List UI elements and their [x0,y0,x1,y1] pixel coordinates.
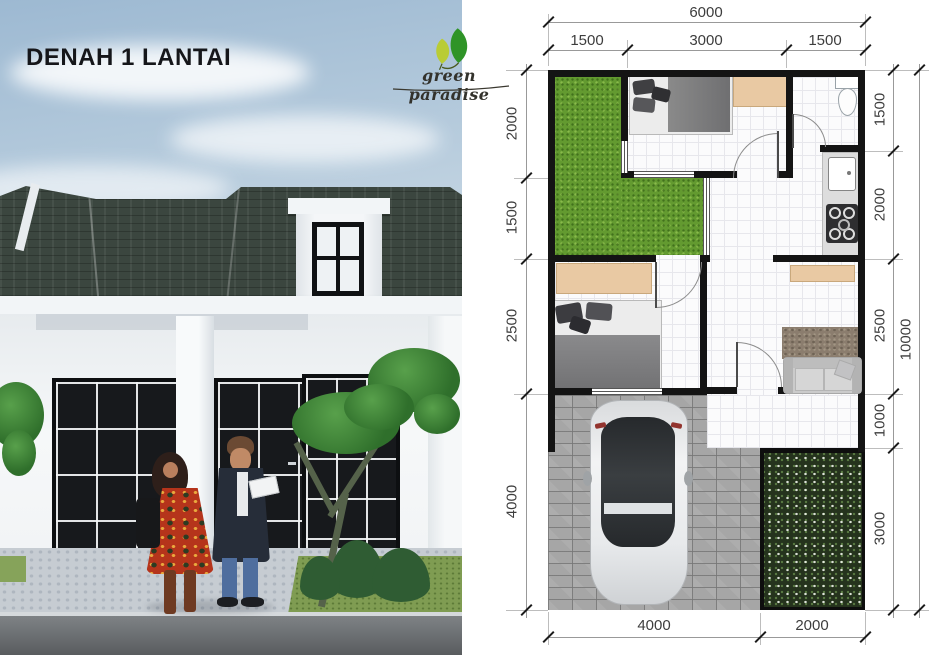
dim-left-seg-2: 1500 [504,188,521,248]
wall-kitchen-bottom [773,255,865,262]
man-shoe [217,597,238,607]
dim-line [893,64,894,618]
pillow [632,97,655,113]
extension-line [514,394,548,395]
road [0,616,462,655]
wall-bedroom2-top [548,255,656,262]
dim-right-seg-4: 1000 [872,391,889,451]
sofa-cushion [795,368,824,391]
stove-knob [838,219,850,231]
pillow [585,302,612,321]
bed-blanket [552,335,660,391]
dim-left-seg-4: 4000 [504,472,521,532]
porch-shadow [36,314,308,330]
dim-top-seg-2: 3000 [676,32,736,49]
door-leaf [736,342,738,387]
window-icon [592,388,662,395]
dim-bottom-seg-2: 2000 [782,617,842,634]
wardrobe-icon [556,263,652,294]
man-shoe [241,597,264,607]
wall-stub [778,171,793,178]
car-roof-band [604,503,672,514]
dim-left-seg-3: 2500 [504,296,521,356]
woman-face [163,462,178,478]
man-jeans [222,558,237,600]
sofa-arm [784,358,793,393]
dim-line [919,64,920,618]
woman-boot [184,570,196,612]
wall-terrace-left [707,387,737,394]
extension-line [786,40,787,68]
dormer-cornice [288,198,390,214]
poster: DENAH 1 LANTAI [0,0,938,655]
sofa-arm [852,358,861,393]
window-icon [703,178,710,255]
bed-blanket [668,77,730,132]
woman-boot [164,570,176,614]
roof [0,182,462,304]
logo-underline [391,84,511,92]
extension-line [865,151,903,152]
wardrobe-icon [733,76,788,107]
dim-right-seg-5: 3000 [872,499,889,559]
dim-right-total: 10000 [898,310,915,370]
frangipani-foliage [414,394,460,434]
car-mirror [684,471,693,486]
man-shirt [237,472,248,516]
wall-bathroom-bottom [820,145,865,152]
car-icon [590,400,688,605]
extension-line [514,178,548,179]
dim-top-seg-1: 1500 [557,32,617,49]
fascia [0,296,462,316]
extension-line [514,259,548,260]
dim-line [548,22,865,23]
rug-icon [782,327,860,359]
dim-line [548,637,865,638]
garden-lawn [621,178,703,255]
dim-line [526,64,527,618]
window-icon [621,141,628,173]
sink-drain [847,171,851,175]
door-handle [288,462,296,465]
tree-left-foliage [2,430,36,476]
wall-exterior-top [548,70,865,77]
window-mullion [317,256,359,260]
car-mirror [583,471,592,486]
garden-shrubs [760,448,865,610]
door-leaf [792,114,794,148]
sofa-icon [783,357,862,394]
dim-bottom-seg-1: 4000 [624,617,684,634]
man-face [230,448,251,471]
stove-icon [826,204,858,243]
grass-strip-left [0,556,26,582]
console-cabinet-icon [790,265,855,282]
man-jeans [243,558,258,600]
wall-bedroom2-right [700,255,707,395]
garden-lawn [555,77,621,255]
window-icon [634,171,694,178]
car-glass [601,417,675,547]
dim-top-seg-3: 1500 [795,32,855,49]
woman-bag [136,498,160,548]
sink-icon [828,157,856,191]
frangipani-foliage [344,384,414,430]
dim-line [548,50,865,51]
dim-top-total: 6000 [676,4,736,21]
page-title: DENAH 1 LANTAI [26,44,231,72]
terrace-floor [707,395,865,448]
door-leaf [777,131,779,178]
extension-line [548,612,549,645]
dim-right-seg-2: 2000 [872,175,889,235]
brand-logo: green paradise [383,26,515,88]
extension-line [760,613,761,645]
extension-line [865,259,903,260]
door-leaf [655,262,657,308]
dim-right-seg-1: 1500 [872,80,889,140]
dim-right-seg-3: 2500 [872,296,889,356]
extension-line [865,612,866,645]
extension-line [627,40,628,68]
cloud [170,115,440,163]
